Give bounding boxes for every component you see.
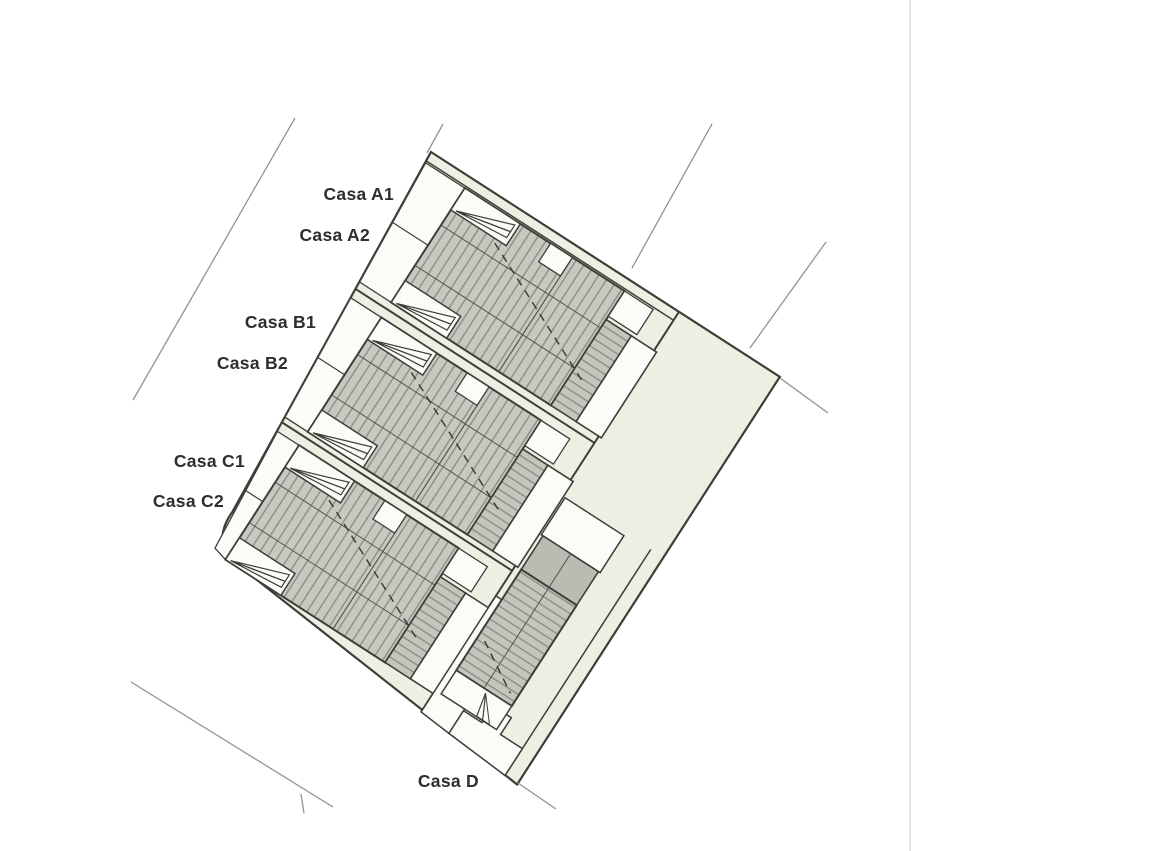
label-casa-a2[interactable]: Casa A2 <box>299 225 370 245</box>
label-casa-a1[interactable]: Casa A1 <box>323 184 394 204</box>
survey-line <box>131 682 333 807</box>
label-casa-d[interactable]: Casa D <box>418 771 479 791</box>
survey-tick <box>301 794 304 813</box>
label-casa-c1[interactable]: Casa C1 <box>174 451 245 471</box>
survey-line <box>780 378 828 413</box>
survey-line <box>750 242 826 348</box>
survey-line <box>632 124 712 268</box>
label-casa-b2[interactable]: Casa B2 <box>217 353 288 373</box>
label-casa-b1[interactable]: Casa B1 <box>245 312 316 332</box>
plot-group <box>168 152 780 784</box>
page: Casa A1 Casa A2 Casa B1 Casa B2 Casa C1 … <box>0 0 1152 851</box>
survey-line <box>518 783 556 809</box>
label-casa-c2[interactable]: Casa C2 <box>153 491 224 511</box>
site-plan-svg: Casa A1 Casa A2 Casa B1 Casa B2 Casa C1 … <box>0 0 1152 851</box>
survey-line <box>427 124 443 153</box>
